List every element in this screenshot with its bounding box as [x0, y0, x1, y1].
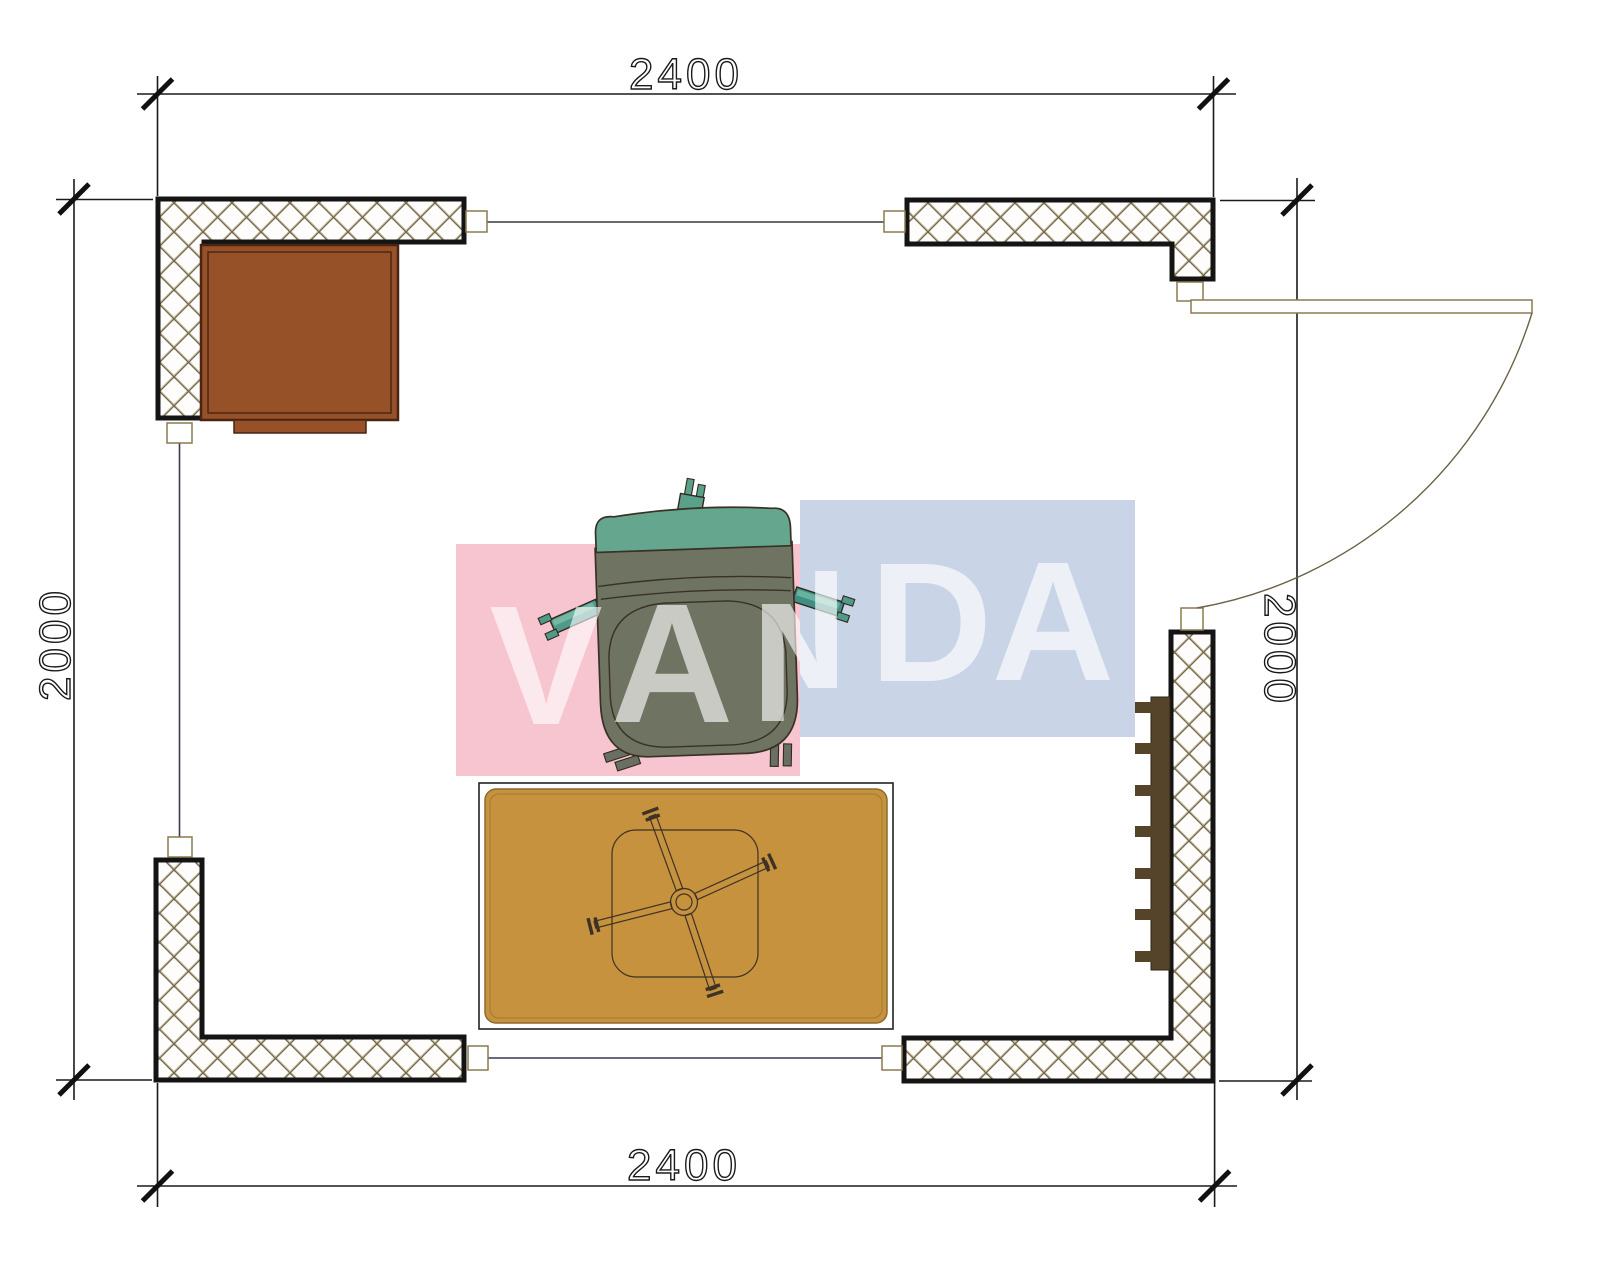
svg-text:2400: 2400 [627, 1141, 741, 1190]
svg-text:V: V [489, 571, 602, 761]
svg-text:A: A [611, 569, 734, 759]
svg-text:2000: 2000 [1255, 593, 1304, 707]
svg-text:2000: 2000 [31, 587, 80, 701]
svg-text:D: D [870, 528, 993, 718]
svg-text:2400: 2400 [629, 50, 743, 99]
svg-text:A: A [992, 527, 1115, 717]
